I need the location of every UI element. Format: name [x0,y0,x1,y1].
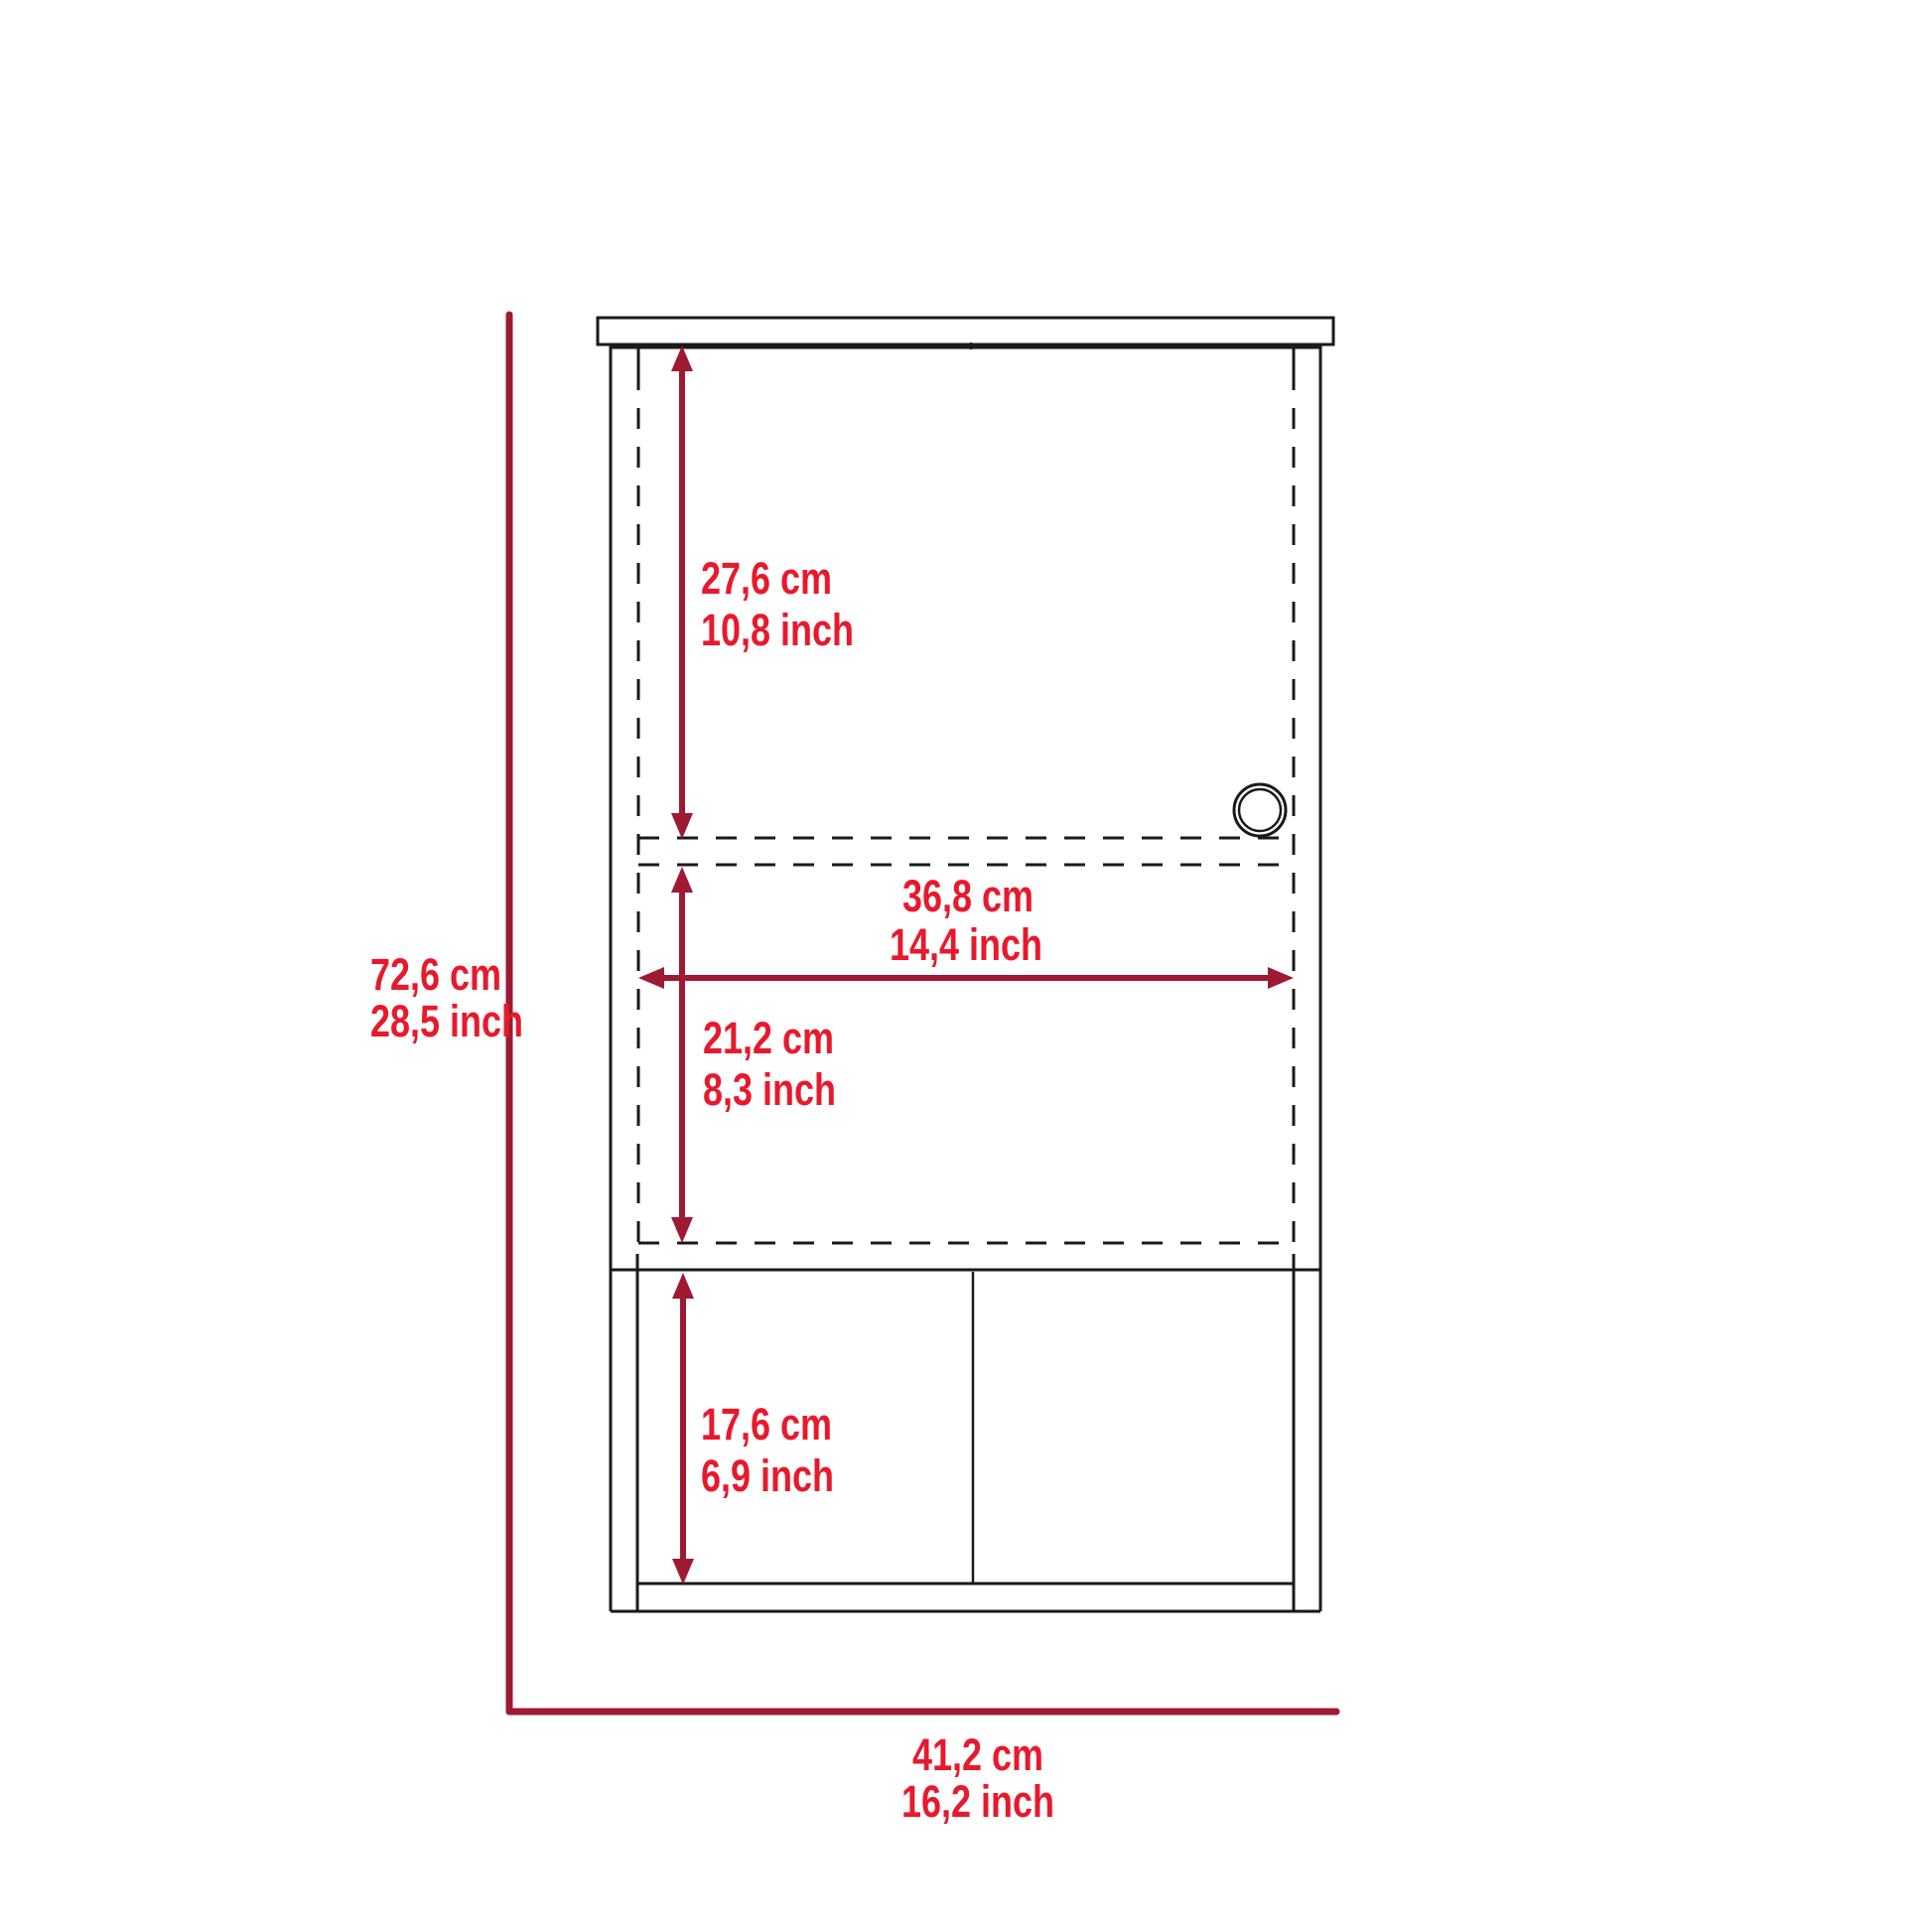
door-handle-icon [1234,784,1286,836]
door-height-cm: 27,6 cm [701,553,832,604]
dimension-label-middle-height: 21,2 cm 8,3 inch [703,1013,836,1115]
middle-height-cm: 21,2 cm [703,1013,834,1063]
door-height-arrow [671,345,693,839]
bottom-height-inch: 6,9 inch [701,1450,834,1501]
dimension-label-door-height: 27,6 cm 10,8 inch [701,553,854,655]
inner-width-cm: 36,8 cm [902,871,1034,921]
handle-outer-ring [1234,784,1286,836]
dimension-label-total-height: 72,6 cm 28,5 inch [370,949,523,1046]
inner-width-inch: 14,4 inch [890,919,1042,970]
dimension-label-total-width: 41,2 cm 16,2 inch [901,1729,1054,1827]
cabinet-dimension-drawing: 27,6 cm 10,8 inch 36,8 cm 14,4 inch 21,2… [0,0,1932,1932]
dimension-label-inner-width: 36,8 cm 14,4 inch [890,871,1042,970]
dimension-diagram: 27,6 cm 10,8 inch 36,8 cm 14,4 inch 21,2… [0,0,1932,1932]
cabinet-top-panel [598,318,1333,345]
bottom-height-cm: 17,6 cm [701,1399,832,1449]
bottom-height-arrow [672,1273,694,1585]
handle-inner-ring [1239,789,1281,831]
total-height-cm: 72,6 cm [370,949,501,1000]
middle-height-arrow [671,867,693,1243]
total-height-inch: 28,5 inch [370,996,523,1046]
total-width-cm: 41,2 cm [912,1729,1043,1780]
middle-height-inch: 8,3 inch [703,1064,836,1115]
inner-width-arrow [638,967,1294,989]
dimension-label-bottom-height: 17,6 cm 6,9 inch [701,1399,834,1501]
overall-dimension-axes [509,315,1336,1712]
door-height-inch: 10,8 inch [701,605,854,655]
total-width-inch: 16,2 inch [901,1776,1054,1827]
